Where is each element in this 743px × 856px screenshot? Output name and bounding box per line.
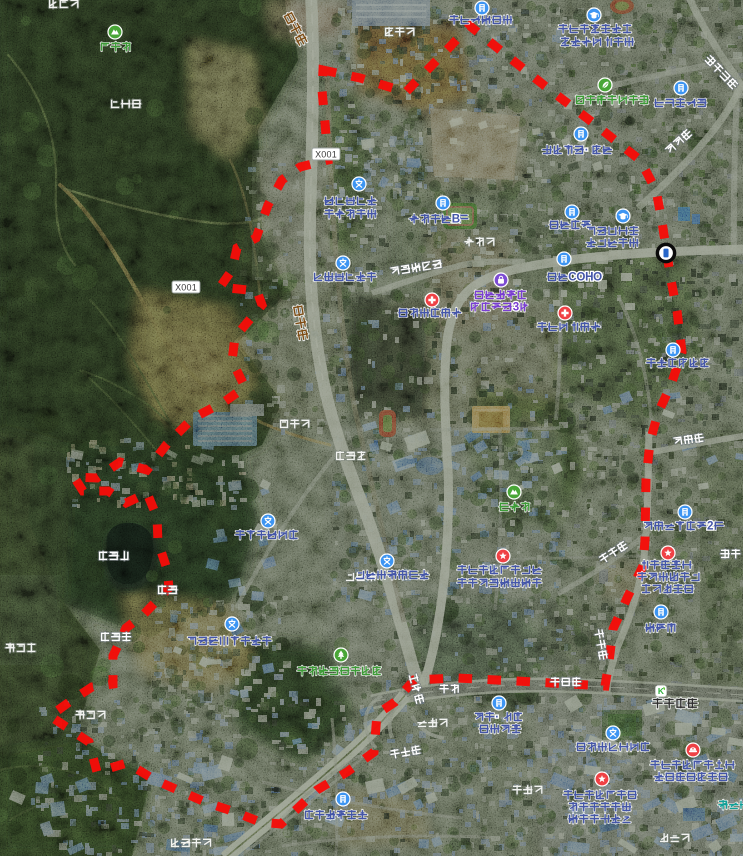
svg-text:2: 2 xyxy=(707,520,713,533)
svg-text:3: 3 xyxy=(513,301,520,314)
svg-text:·: · xyxy=(495,711,499,724)
svg-text:X001: X001 xyxy=(175,283,197,293)
svg-text:·: · xyxy=(585,144,589,157)
svg-text:B: B xyxy=(452,213,460,226)
svg-text:COHO: COHO xyxy=(568,271,602,284)
svg-text:X001: X001 xyxy=(315,150,337,160)
svg-text:K: K xyxy=(658,686,664,696)
